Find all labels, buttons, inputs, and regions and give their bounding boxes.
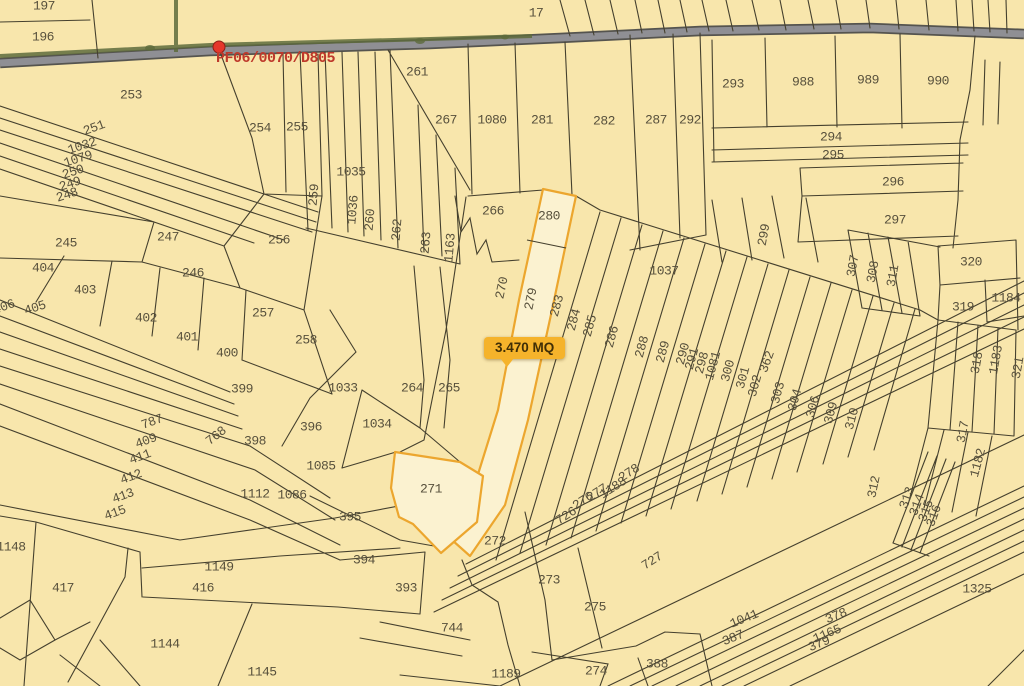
parcel-label: 989 bbox=[857, 73, 879, 88]
parcel-label: 321 bbox=[1009, 356, 1024, 380]
parcel-label: 260 bbox=[362, 208, 379, 231]
parcel-label: 318 bbox=[968, 351, 987, 375]
parcel-label: 1112 bbox=[240, 487, 269, 502]
parcel-label: 247 bbox=[157, 230, 179, 245]
parcel-label: 1035 bbox=[336, 165, 365, 180]
parcel-label: 1033 bbox=[328, 381, 357, 396]
parcel-label: 259 bbox=[306, 183, 323, 206]
parcel-label: 248 bbox=[54, 184, 79, 205]
parcel-label: 400 bbox=[216, 346, 238, 361]
parcel-label: 253 bbox=[120, 88, 142, 103]
parcel-label: 320 bbox=[960, 255, 982, 270]
parcel-label: 1183 bbox=[986, 344, 1006, 375]
parcel-label: 1325 bbox=[962, 582, 991, 597]
parcel-label: 379 bbox=[806, 633, 832, 655]
parcel-label: 1086 bbox=[277, 488, 306, 503]
parcel-label: 393 bbox=[395, 581, 417, 596]
parcel-label: 273 bbox=[538, 573, 560, 588]
parcel-label: 1041 bbox=[728, 607, 761, 632]
parcel-label: 1148 bbox=[0, 540, 26, 555]
parcel-label: 310 bbox=[842, 406, 862, 431]
parcel-label: 405 bbox=[22, 297, 47, 318]
parcel-label: 412 bbox=[118, 466, 144, 488]
parcel-label: 1163 bbox=[441, 233, 458, 263]
parcel-label: 304 bbox=[785, 387, 805, 412]
parcel-label: 988 bbox=[792, 75, 814, 90]
parcel-label: 403 bbox=[74, 283, 96, 298]
parcel-label: 398 bbox=[244, 434, 266, 449]
parcel-label: 255 bbox=[286, 120, 308, 135]
parcel-label: 285 bbox=[580, 313, 600, 338]
area-badge: 3.470 MQ bbox=[484, 337, 565, 359]
parcel-label: 396 bbox=[300, 420, 322, 435]
parcel-label: 1184 bbox=[991, 291, 1020, 306]
parcel-label: 319 bbox=[952, 300, 974, 315]
parcel-label: 270 bbox=[492, 276, 511, 301]
parcel-label: 280 bbox=[538, 209, 560, 224]
parcel-label: 256 bbox=[268, 233, 290, 248]
parcel-label: 768 bbox=[203, 423, 229, 448]
parcel-label: 401 bbox=[176, 330, 198, 345]
parcel-label: 402 bbox=[135, 311, 157, 326]
marker-label: PF06/0070/D805 bbox=[216, 50, 335, 67]
parcel-label: 258 bbox=[295, 333, 317, 348]
parcel-label: 303 bbox=[768, 380, 788, 405]
parcel-label: 293 bbox=[722, 77, 744, 92]
parcel-label: 411 bbox=[127, 446, 153, 468]
parcel-label: 279 bbox=[521, 287, 540, 312]
parcel-label: 362 bbox=[756, 349, 778, 375]
parcel-label: 286 bbox=[602, 324, 622, 349]
parcel-label: 296 bbox=[882, 175, 904, 190]
parcel-label: 306 bbox=[803, 394, 823, 419]
parcel-label: 297 bbox=[884, 213, 906, 228]
cadastral-map[interactable]: 1971961725325425525110321079250249248261… bbox=[0, 0, 1024, 686]
parcel-label: 246 bbox=[182, 266, 204, 281]
parcel-label: 266 bbox=[482, 204, 504, 219]
parcel-label: 744 bbox=[441, 621, 463, 636]
parcel-label: 265 bbox=[438, 381, 460, 396]
parcel-label: 272 bbox=[484, 534, 506, 549]
parcel-label: 990 bbox=[927, 74, 949, 89]
parcel-label: 275 bbox=[584, 600, 606, 615]
parcel-label: 307 bbox=[844, 254, 863, 278]
parcel-label: 1189 bbox=[491, 667, 520, 682]
parcel-label: 254 bbox=[249, 121, 271, 136]
area-badge-text: 3.470 MQ bbox=[495, 340, 554, 355]
parcel-label: 196 bbox=[32, 30, 54, 45]
parcel-label: 263 bbox=[418, 231, 435, 254]
parcel-label: 274 bbox=[585, 664, 607, 679]
parcel-label: 1145 bbox=[247, 665, 276, 680]
parcel-label: 406 bbox=[0, 296, 17, 318]
parcel-label: 245 bbox=[55, 236, 77, 251]
parcel-label: 281 bbox=[531, 113, 553, 128]
parcel-label: 282 bbox=[593, 114, 615, 129]
parcel-label: 395 bbox=[339, 510, 361, 525]
parcel-label: 417 bbox=[52, 581, 74, 596]
parcel-label: 289 bbox=[653, 339, 673, 364]
parcel-label: 294 bbox=[820, 130, 842, 145]
parcel-label: 311 bbox=[884, 264, 903, 288]
parcel-label: 415 bbox=[102, 502, 128, 524]
parcel-label: 727 bbox=[639, 549, 666, 574]
parcel-label: 317 bbox=[954, 420, 973, 444]
parcel-label: 288 bbox=[632, 334, 652, 359]
parcel-label: 399 bbox=[231, 382, 253, 397]
parcel-label: 1182 bbox=[967, 447, 989, 479]
parcel-label: 1149 bbox=[204, 560, 233, 575]
parcel-label: 287 bbox=[645, 113, 667, 128]
parcel-label: 387 bbox=[720, 627, 746, 649]
parcel-label: 261 bbox=[406, 65, 428, 80]
parcel-label: 312 bbox=[864, 475, 883, 500]
parcel-label: 1080 bbox=[477, 113, 506, 128]
parcel-label: 1144 bbox=[150, 637, 179, 652]
parcel-label: 404 bbox=[32, 261, 54, 276]
parcel-label: 264 bbox=[401, 381, 423, 396]
parcel-label: 267 bbox=[435, 113, 457, 128]
parcel-label: 308 bbox=[864, 260, 883, 284]
parcel-label: 1034 bbox=[362, 417, 391, 432]
parcel-label: 1085 bbox=[306, 459, 335, 474]
parcel-label: 299 bbox=[755, 223, 774, 247]
parcel-label: 283 bbox=[547, 293, 567, 318]
parcel-label: 309 bbox=[821, 400, 841, 425]
parcel-label: 292 bbox=[679, 113, 701, 128]
parcel-label: 388 bbox=[646, 657, 668, 672]
parcel-label: 197 bbox=[33, 0, 55, 14]
parcel-label: 416 bbox=[192, 581, 214, 596]
parcel-label: 295 bbox=[822, 148, 844, 163]
parcel-label: 17 bbox=[529, 6, 544, 21]
parcel-label: 262 bbox=[389, 218, 406, 241]
parcel-label: 1036 bbox=[344, 195, 361, 225]
parcel-label: 1037 bbox=[649, 264, 678, 279]
parcel-label: 394 bbox=[353, 553, 375, 568]
parcel-label: 271 bbox=[420, 482, 442, 497]
parcel-label: 257 bbox=[252, 306, 274, 321]
